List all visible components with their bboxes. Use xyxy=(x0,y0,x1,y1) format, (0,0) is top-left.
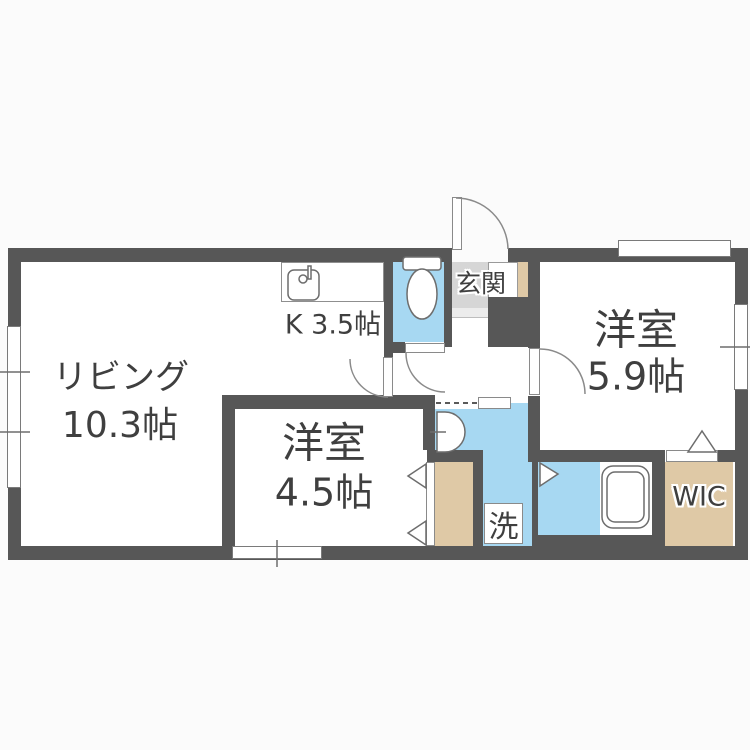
window-glyph xyxy=(734,304,748,390)
kitchen-label: K 3.5帖 xyxy=(285,303,381,342)
entrance-label: 玄関 xyxy=(456,264,506,300)
kitchen-counter xyxy=(281,262,384,302)
washroom-floor-upper xyxy=(435,409,483,450)
toilet-door-leaf xyxy=(405,343,445,353)
bathroom-floor xyxy=(538,462,600,535)
wall xyxy=(222,395,235,546)
wall xyxy=(8,248,452,262)
wall xyxy=(384,342,405,353)
wall xyxy=(444,262,452,347)
wall xyxy=(528,262,540,348)
floor-plan: リビング 10.3帖 K 3.5帖 玄関 洋室 5.9帖 洋室 4.5帖 洗 W… xyxy=(0,0,750,750)
wall xyxy=(532,462,538,535)
window-glyph xyxy=(618,240,731,257)
living-room-size: 10.3帖 xyxy=(62,396,178,448)
toilet-room-floor xyxy=(392,262,444,342)
wall xyxy=(718,450,735,462)
shoe-cabinet-edge xyxy=(518,262,528,298)
wall xyxy=(8,546,748,560)
bathtub-area xyxy=(600,462,652,535)
door-swing-arc-entrance xyxy=(456,198,508,249)
living-door-leaf xyxy=(383,357,393,397)
wall xyxy=(423,409,435,450)
bedroom-left-size: 4.5帖 xyxy=(275,462,373,517)
bedroom-door-leaf xyxy=(529,348,540,395)
wic-label: WIC xyxy=(672,482,726,513)
floor-plan-canvas: リビング 10.3帖 K 3.5帖 玄関 洋室 5.9帖 洋室 4.5帖 洗 W… xyxy=(0,0,750,750)
wall xyxy=(427,450,483,462)
wall xyxy=(532,450,665,462)
window-glyph xyxy=(7,326,21,488)
closet-floor xyxy=(435,462,473,546)
wall xyxy=(532,535,665,547)
wall xyxy=(652,450,665,546)
entrance-step xyxy=(452,308,488,318)
washroom-door-leaf xyxy=(478,397,511,409)
wall xyxy=(473,462,483,546)
wall xyxy=(222,395,435,409)
laundry-label-box: 洗 xyxy=(484,503,523,544)
bedroom-right-size: 5.9帖 xyxy=(587,346,685,401)
closet-door-leaf xyxy=(426,462,435,546)
wic-door-leaf xyxy=(666,450,718,462)
wall xyxy=(735,248,748,560)
window-glyph xyxy=(232,546,322,559)
entrance-door-leaf xyxy=(452,197,462,250)
living-room-label: リビング xyxy=(53,350,189,399)
